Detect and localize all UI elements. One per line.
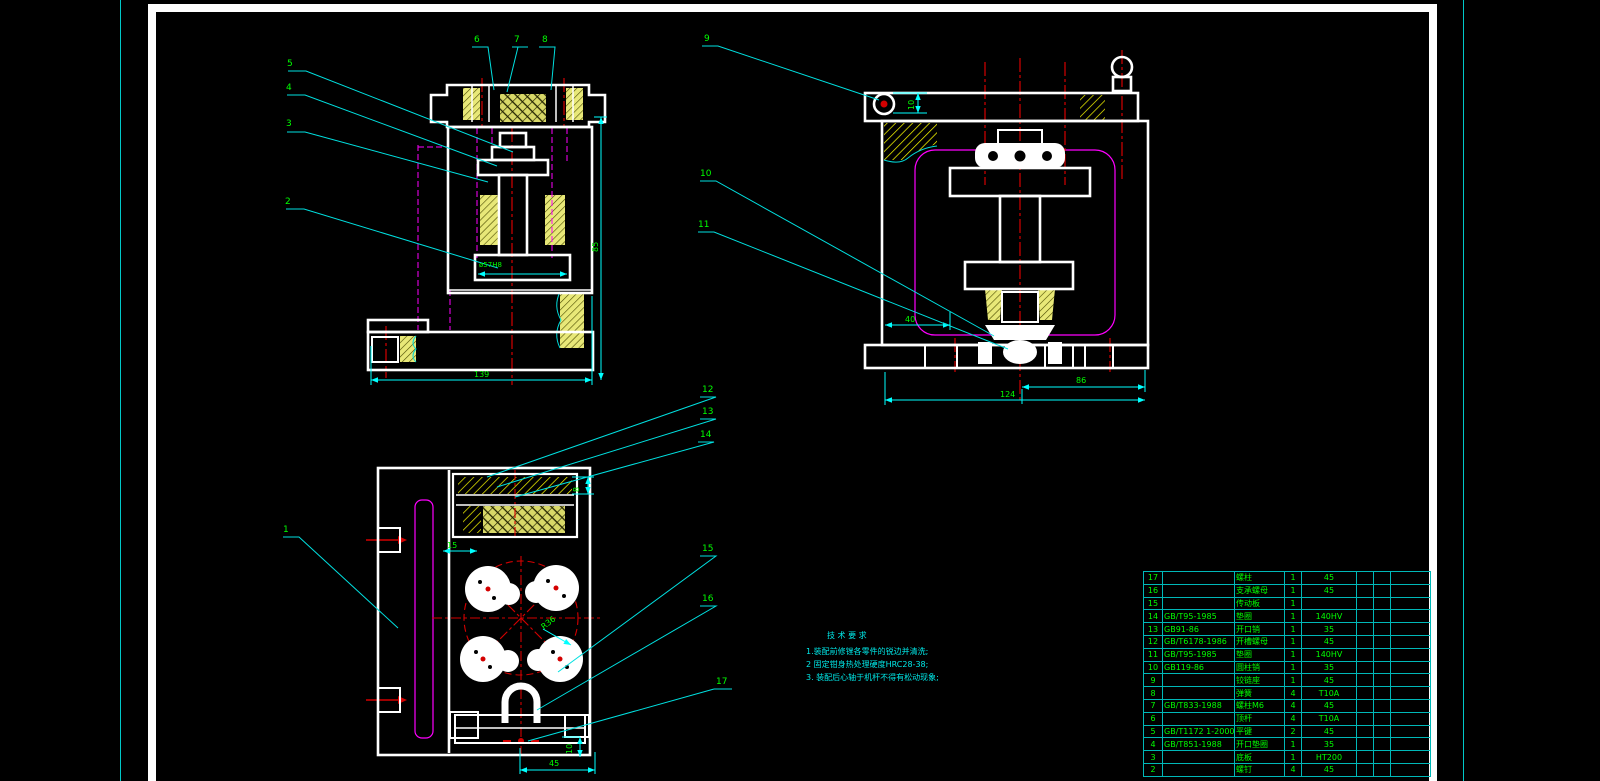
bom-cell-material: HT200: [1302, 751, 1357, 764]
dimension-top-10: 10: [908, 100, 916, 110]
bom-cell-code: [1163, 763, 1235, 776]
bom-cell-c2: [1374, 751, 1391, 764]
bom-cell-material: 35: [1302, 661, 1357, 674]
bom-cell-material: [1302, 597, 1357, 610]
bom-cell-material: T10A: [1302, 687, 1357, 700]
bom-cell-no: 12: [1144, 635, 1163, 648]
part-label-9: 9: [704, 35, 710, 44]
dimension-right-86: 86: [1076, 377, 1086, 385]
part-label-15: 15: [702, 545, 713, 554]
bom-cell-c3: [1391, 699, 1431, 712]
bom-cell-no: 11: [1144, 648, 1163, 661]
dimension-total-124: 124: [1000, 391, 1015, 399]
bom-cell-name: 圆柱销: [1235, 661, 1285, 674]
bom-cell-c3: [1391, 674, 1431, 687]
bom-cell-no: 15: [1144, 597, 1163, 610]
bom-cell-code: GB/T851-1988: [1163, 738, 1235, 751]
bom-cell-code: [1163, 712, 1235, 725]
dimension-slot-15: 15: [447, 542, 457, 550]
bom-cell-name: 螺柱M6: [1235, 699, 1285, 712]
bom-row: 6顶杆4T10A: [1144, 712, 1431, 725]
part-label-2: 2: [285, 198, 291, 207]
bom-cell-qty: 4: [1285, 699, 1302, 712]
bom-cell-material: 45: [1302, 763, 1357, 776]
notes-title: 技 术 要 求: [827, 632, 867, 640]
bom-cell-c3: [1391, 763, 1431, 776]
front-section-view: [368, 78, 605, 385]
bom-cell-qty: 1: [1285, 597, 1302, 610]
part-label-8: 8: [542, 36, 548, 45]
bom-cell-qty: 1: [1285, 751, 1302, 764]
plan-view: [366, 468, 600, 758]
bom-cell-name: 底板: [1235, 751, 1285, 764]
bom-cell-no: 16: [1144, 584, 1163, 597]
bom-cell-c2: [1374, 687, 1391, 700]
bom-cell-material: 45: [1302, 584, 1357, 597]
bom-cell-c1: [1357, 572, 1374, 585]
bom-cell-name: 顶杆: [1235, 712, 1285, 725]
bom-cell-material: 35: [1302, 738, 1357, 751]
bom-cell-c3: [1391, 751, 1431, 764]
bom-cell-c3: [1391, 635, 1431, 648]
bom-cell-name: 开槽螺母: [1235, 635, 1285, 648]
bom-cell-c3: [1391, 584, 1431, 597]
bom-cell-c1: [1357, 597, 1374, 610]
bom-cell-c3: [1391, 572, 1431, 585]
bom-cell-code: GB91-86: [1163, 623, 1235, 636]
bom-row: 7GB/T833-1988螺柱M6445: [1144, 699, 1431, 712]
bom-cell-c1: [1357, 610, 1374, 623]
bom-cell-c1: [1357, 674, 1374, 687]
bom-cell-c3: [1391, 610, 1431, 623]
bom-cell-c3: [1391, 661, 1431, 674]
bom-cell-no: 10: [1144, 661, 1163, 674]
bom-cell-material: 35: [1302, 623, 1357, 636]
bom-cell-no: 6: [1144, 712, 1163, 725]
bom-cell-qty: 1: [1285, 648, 1302, 661]
bom-cell-c1: [1357, 584, 1374, 597]
part-label-13: 13: [702, 408, 713, 417]
bom-cell-name: 弹簧: [1235, 687, 1285, 700]
bom-row: 13GB91-86开口销135: [1144, 623, 1431, 636]
bom-cell-code: GB/T1172 1-2000: [1163, 725, 1235, 738]
part-label-16: 16: [702, 595, 713, 604]
bom-cell-c2: [1374, 597, 1391, 610]
bom-cell-c2: [1374, 738, 1391, 751]
bom-cell-material: 140HV: [1302, 648, 1357, 661]
bom-cell-name: 垫圈: [1235, 648, 1285, 661]
cad-sheet: 5 4 3 2 6 7 8 9 10 11 1 12 13 14 15 16 1…: [0, 0, 1600, 781]
dimension-gib-8: 8: [573, 487, 581, 492]
part-label-12: 12: [702, 386, 713, 395]
bom-cell-c2: [1374, 572, 1391, 585]
note-line-3: 3. 装配后心轴于机杆不得有松动现象;: [806, 674, 939, 682]
part-label-5: 5: [287, 60, 293, 69]
bom-cell-no: 8: [1144, 687, 1163, 700]
bom-cell-code: GB119-86: [1163, 661, 1235, 674]
bom-cell-no: 17: [1144, 572, 1163, 585]
bom-row: 12GB/T6178-1986开槽螺母145: [1144, 635, 1431, 648]
bom-cell-material: 45: [1302, 635, 1357, 648]
bom-cell-c1: [1357, 751, 1374, 764]
bom-cell-c3: [1391, 623, 1431, 636]
bom-cell-code: [1163, 687, 1235, 700]
bom-row: 9铰链座145: [1144, 674, 1431, 687]
bom-cell-no: 3: [1144, 751, 1163, 764]
bom-cell-c2: [1374, 725, 1391, 738]
bom-cell-name: 传动板: [1235, 597, 1285, 610]
bom-cell-qty: 1: [1285, 738, 1302, 751]
bom-row: 14GB/T95-1985垫圈1140HV: [1144, 610, 1431, 623]
bom-cell-c2: [1374, 635, 1391, 648]
bom-cell-code: GB/T95-1985: [1163, 610, 1235, 623]
bom-cell-c2: [1374, 610, 1391, 623]
bom-cell-name: 支承螺母: [1235, 584, 1285, 597]
bom-cell-material: 45: [1302, 725, 1357, 738]
bom-cell-material: 140HV: [1302, 610, 1357, 623]
note-line-1: 1.装配前修锉各零件的锐边并清洗;: [806, 648, 928, 656]
bom-cell-no: 9: [1144, 674, 1163, 687]
bom-cell-c1: [1357, 725, 1374, 738]
bom-cell-material: 45: [1302, 572, 1357, 585]
bom-cell-c3: [1391, 648, 1431, 661]
part-label-4: 4: [286, 84, 292, 93]
bom-cell-qty: 1: [1285, 661, 1302, 674]
dimension-key-10: 10: [566, 744, 574, 754]
bom-cell-no: 14: [1144, 610, 1163, 623]
bom-row: 10GB119-86圆柱销135: [1144, 661, 1431, 674]
bom-cell-name: 开口销: [1235, 623, 1285, 636]
bom-cell-qty: 1: [1285, 635, 1302, 648]
bom-cell-code: GB/T833-1988: [1163, 699, 1235, 712]
bom-cell-name: 铰链座: [1235, 674, 1285, 687]
bom-cell-c1: [1357, 738, 1374, 751]
bom-cell-no: 2: [1144, 763, 1163, 776]
bom-cell-material: 45: [1302, 674, 1357, 687]
bom-cell-qty: 2: [1285, 725, 1302, 738]
dimension-height-85: 85: [592, 242, 600, 252]
bom-row: 4GB/T851-1988开口垫圈135: [1144, 738, 1431, 751]
part-label-10: 10: [700, 170, 711, 179]
bom-row: 15传动板1: [1144, 597, 1431, 610]
part-label-14: 14: [700, 431, 711, 440]
bom-cell-code: [1163, 597, 1235, 610]
bom-cell-c2: [1374, 623, 1391, 636]
bom-cell-c2: [1374, 661, 1391, 674]
part-label-7: 7: [514, 36, 520, 45]
bom-cell-c2: [1374, 648, 1391, 661]
bom-cell-name: 平键: [1235, 725, 1285, 738]
bom-cell-c2: [1374, 763, 1391, 776]
bom-cell-code: GB/T6178-1986: [1163, 635, 1235, 648]
bom-row: 17螺柱145: [1144, 572, 1431, 585]
bom-cell-qty: 1: [1285, 674, 1302, 687]
bom-row: 16支承螺母145: [1144, 584, 1431, 597]
bom-cell-c1: [1357, 648, 1374, 661]
bom-row: 3底板1HT200: [1144, 751, 1431, 764]
bom-cell-c2: [1374, 584, 1391, 597]
bom-cell-name: 螺钉: [1235, 763, 1285, 776]
bom-cell-qty: 4: [1285, 763, 1302, 776]
bom-cell-c1: [1357, 635, 1374, 648]
bom-row: 8弹簧4T10A: [1144, 687, 1431, 700]
bom-cell-c1: [1357, 687, 1374, 700]
bom-cell-no: 7: [1144, 699, 1163, 712]
bom-cell-c1: [1357, 699, 1374, 712]
bom-cell-c1: [1357, 763, 1374, 776]
bom-cell-c2: [1374, 699, 1391, 712]
note-line-2: 2 固定钳身热处理硬度HRC28-38;: [806, 661, 928, 669]
dimension-offset-40: 40: [905, 316, 915, 324]
bom-cell-name: 螺柱: [1235, 572, 1285, 585]
bom-cell-c1: [1357, 661, 1374, 674]
bom-cell-qty: 4: [1285, 712, 1302, 725]
part-label-17: 17: [716, 678, 727, 687]
bom-cell-c1: [1357, 712, 1374, 725]
bom-cell-no: 5: [1144, 725, 1163, 738]
bom-cell-code: GB/T95-1985: [1163, 648, 1235, 661]
bom-table: 17螺柱14516支承螺母14515传动板114GB/T95-1985垫圈114…: [1143, 571, 1431, 777]
bom-cell-code: [1163, 674, 1235, 687]
bom-row: 5GB/T1172 1-2000平键245: [1144, 725, 1431, 738]
bom-cell-c1: [1357, 623, 1374, 636]
part-label-11: 11: [698, 221, 709, 230]
bom-row: 11GB/T95-1985垫圈1140HV: [1144, 648, 1431, 661]
bom-cell-no: 13: [1144, 623, 1163, 636]
bom-cell-name: 垫圈: [1235, 610, 1285, 623]
bom-table-body: 17螺柱14516支承螺母14515传动板114GB/T95-1985垫圈114…: [1144, 572, 1431, 777]
part-label-6: 6: [474, 36, 480, 45]
bom-cell-qty: 1: [1285, 584, 1302, 597]
bom-cell-c3: [1391, 738, 1431, 751]
bom-cell-no: 4: [1144, 738, 1163, 751]
bom-cell-material: T10A: [1302, 712, 1357, 725]
bom-cell-name: 开口垫圈: [1235, 738, 1285, 751]
bom-row: 2螺钉445: [1144, 763, 1431, 776]
bom-cell-c2: [1374, 712, 1391, 725]
bom-cell-c3: [1391, 687, 1431, 700]
part-label-3: 3: [286, 120, 292, 129]
bom-cell-c3: [1391, 712, 1431, 725]
bom-cell-code: [1163, 584, 1235, 597]
dimension-bore-57: ø57H8: [479, 262, 502, 269]
bom-cell-qty: 1: [1285, 623, 1302, 636]
bom-cell-code: [1163, 751, 1235, 764]
bom-cell-qty: 1: [1285, 610, 1302, 623]
part-label-1: 1: [283, 526, 289, 535]
bom-cell-qty: 4: [1285, 687, 1302, 700]
bom-cell-c2: [1374, 674, 1391, 687]
dimension-width-45: 45: [549, 760, 559, 768]
bom-cell-material: 45: [1302, 699, 1357, 712]
bom-cell-c3: [1391, 725, 1431, 738]
dimension-width-139: 139: [474, 371, 489, 379]
bom-cell-qty: 1: [1285, 572, 1302, 585]
bom-cell-c3: [1391, 597, 1431, 610]
bom-cell-code: [1163, 572, 1235, 585]
